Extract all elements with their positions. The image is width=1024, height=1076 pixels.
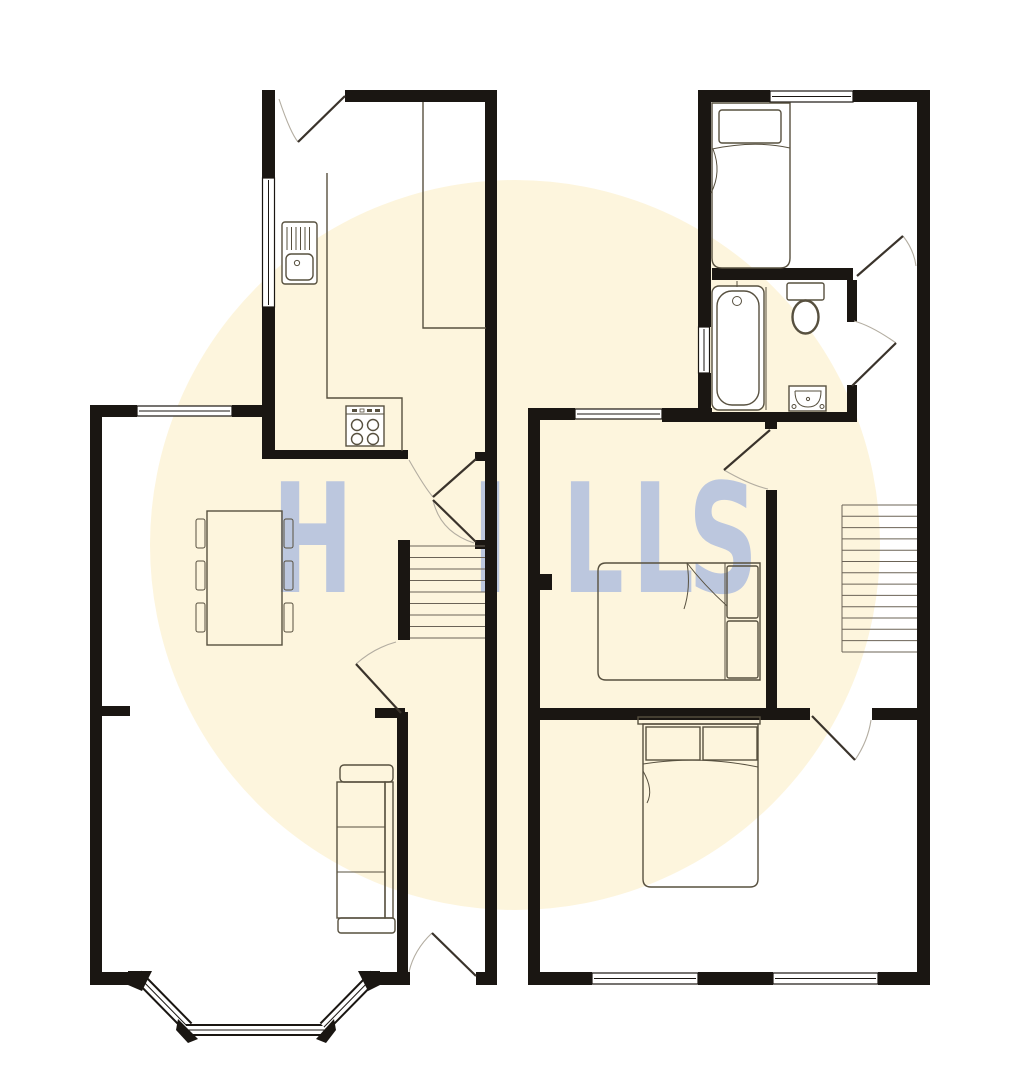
hob bbox=[346, 406, 384, 446]
wall bbox=[397, 712, 408, 973]
floorplan-page: H I L L S bbox=[0, 0, 1024, 1076]
wall bbox=[766, 490, 777, 712]
wall bbox=[528, 420, 540, 985]
wall bbox=[232, 405, 262, 417]
wall bbox=[262, 90, 275, 178]
watermark-letter: L bbox=[632, 453, 694, 629]
wall bbox=[917, 90, 930, 985]
door-arc bbox=[854, 321, 896, 343]
wall bbox=[872, 708, 930, 720]
wall bbox=[345, 90, 497, 102]
door-leaf bbox=[852, 343, 896, 386]
bed-frame bbox=[712, 103, 790, 268]
wall bbox=[528, 972, 592, 985]
hob-control bbox=[375, 409, 380, 412]
wall bbox=[90, 972, 133, 985]
wall bbox=[878, 972, 930, 985]
bath-outer bbox=[712, 286, 764, 410]
wall bbox=[847, 385, 857, 412]
kitchen-sink bbox=[282, 222, 317, 284]
wall bbox=[528, 408, 575, 420]
hob-control bbox=[360, 409, 364, 412]
wall bbox=[90, 417, 102, 972]
watermark-letter: L bbox=[562, 453, 624, 629]
toilet-bowl bbox=[793, 301, 819, 334]
wall bbox=[262, 450, 408, 459]
front-door-leaf bbox=[432, 933, 476, 976]
wall bbox=[102, 706, 130, 716]
sofa-armrest bbox=[338, 918, 395, 933]
wall bbox=[698, 90, 711, 327]
bathtub bbox=[712, 281, 764, 410]
hob-control bbox=[352, 409, 357, 412]
pillow bbox=[719, 110, 781, 143]
duvet-fold bbox=[712, 144, 790, 149]
basin bbox=[789, 386, 826, 411]
hob-control bbox=[367, 409, 372, 412]
wall bbox=[262, 307, 275, 459]
wall bbox=[90, 405, 137, 417]
wall bbox=[485, 90, 497, 985]
door-arc bbox=[903, 236, 916, 266]
wall bbox=[398, 540, 410, 640]
wall bbox=[476, 972, 497, 985]
door-leaf bbox=[298, 96, 345, 142]
wall bbox=[698, 972, 773, 985]
wall bbox=[712, 268, 853, 280]
single-bed bbox=[711, 103, 790, 268]
wall bbox=[847, 280, 857, 322]
chimney-nib bbox=[540, 574, 552, 590]
wall bbox=[700, 412, 857, 422]
door-arc bbox=[279, 99, 298, 142]
bay-window bbox=[128, 971, 380, 1043]
front-door-arc bbox=[409, 933, 432, 972]
toilet-cistern bbox=[787, 283, 824, 300]
door-arc bbox=[855, 720, 871, 760]
wall bbox=[528, 708, 810, 720]
door-leaf bbox=[857, 236, 903, 276]
floorplan-canvas: H I L L S bbox=[0, 0, 1024, 1076]
wall bbox=[765, 418, 777, 429]
